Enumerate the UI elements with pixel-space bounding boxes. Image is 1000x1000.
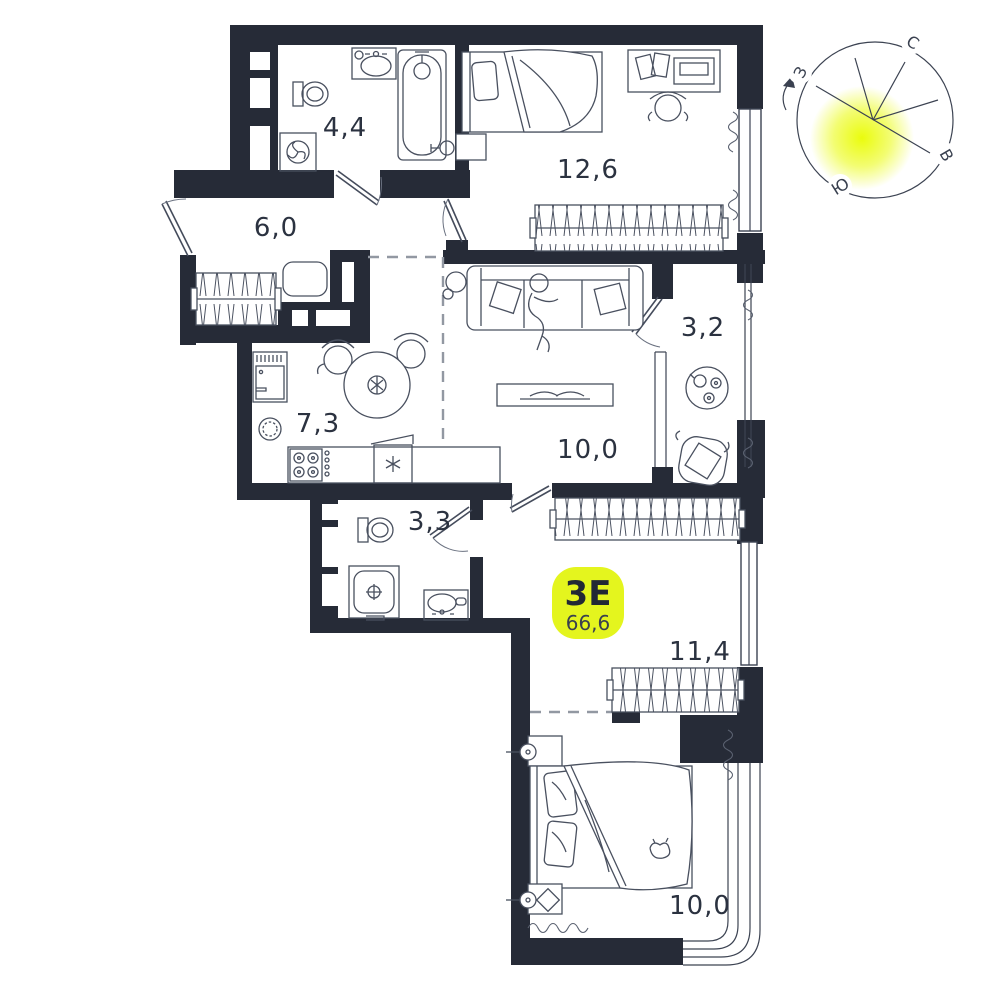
nightstand-icon [431,134,486,160]
bathroom-top-door [336,171,381,205]
label-loggia: 3,2 [681,313,725,343]
room-bedroom-top: 12,6 [431,50,738,220]
badge-area: 66,6 [566,611,611,635]
shower-icon [349,566,399,620]
loggia-table-icon [686,367,728,409]
loggia-door-window [655,352,666,467]
bathtub-icon [398,50,446,160]
room-bathroom-top: 4,4 [280,48,446,171]
hallway-wardrobe [191,273,281,325]
desk-icon [628,50,720,92]
corridor-window [741,542,757,665]
sink-icon [352,48,396,79]
floor-lamp-icon [443,272,466,299]
bedroom-bottom-corner-window [683,763,760,965]
curtain-coil [729,112,738,220]
corridor-wardrobe-bottom [607,668,744,712]
entrance-door [162,199,192,256]
single-bed-icon [462,50,602,132]
fridge-icon [253,352,287,402]
label-bedroom-bottom: 10,0 [669,891,731,921]
loggia-chair-icon [676,431,730,488]
label-hallway: 6,0 [254,213,298,243]
hall-cabinet-icon [283,262,327,296]
label-living: 10,0 [557,435,619,465]
room-corridor: 11,4 3Е 66,6 [552,567,731,667]
desk-chair-icon [648,92,687,121]
bedroom-top-door [443,199,466,242]
toilet-small-icon [358,518,393,542]
room-bathroom-small: 3,3 [349,507,468,620]
badge-type: 3Е [565,574,612,614]
label-bathroom-top: 4,4 [323,113,367,143]
bedroom-top-window [739,109,761,231]
dining-table-icon [318,333,428,418]
apartment-badge: 3Е 66,6 [552,567,624,639]
toilet-icon [293,82,328,106]
compass-sun-glow [810,86,914,190]
floor-plan-drawing: 4,4 12,6 [0,0,1000,1000]
corridor-door [510,486,551,512]
label-kitchen: 7,3 [296,409,340,439]
sofa-icon [467,266,643,330]
tv-console-icon [497,384,613,406]
washer-fan-icon [280,133,316,171]
label-bedroom-top: 12,6 [557,155,619,185]
corridor-wardrobe-top [550,498,745,540]
counter-icon [288,435,500,483]
floor-plan-page: 4,4 12,6 [0,0,1000,1000]
basket-icon [259,418,281,440]
room-living: 10,0 [443,266,643,465]
bedroom-top-wardrobe [530,205,728,251]
compass-arrow [783,83,789,110]
label-bathroom-small: 3,3 [408,507,452,537]
double-bed-icon [530,762,692,890]
label-corridor: 11,4 [669,637,731,667]
compass: С В Ю З [783,30,959,199]
room-kitchen: 7,3 [253,333,500,483]
sink-small-icon [424,590,468,620]
